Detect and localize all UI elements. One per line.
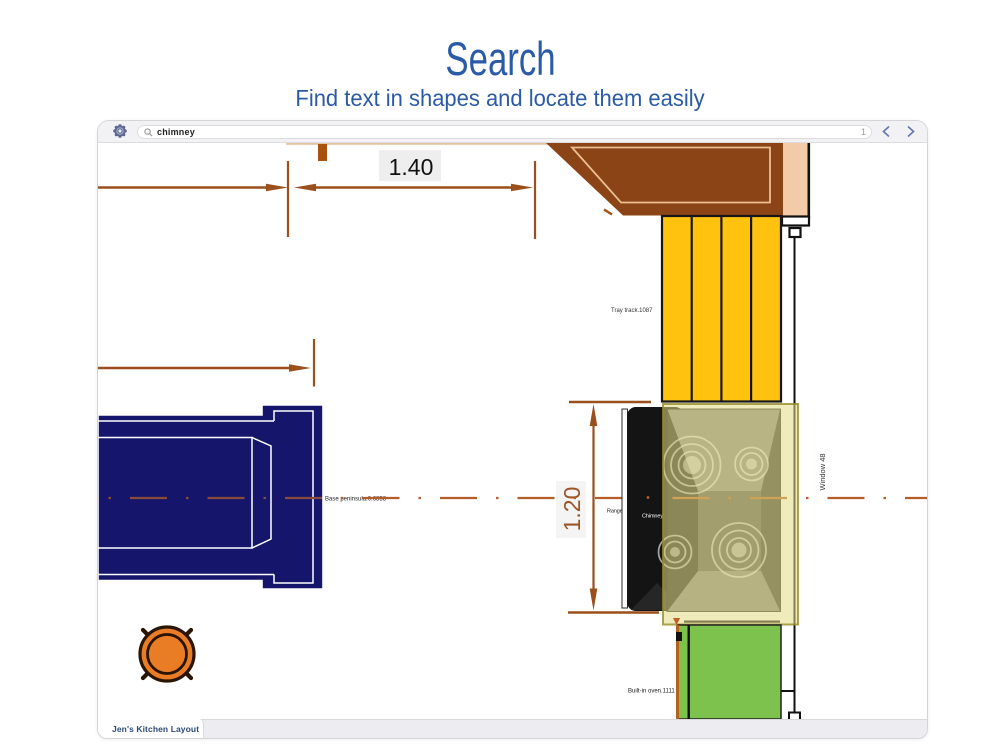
svg-text:Range: Range	[607, 509, 623, 515]
svg-text:1.20: 1.20	[559, 487, 585, 532]
svg-text:1.40: 1.40	[389, 154, 434, 180]
svg-text:Tray track.1087: Tray track.1087	[611, 308, 653, 314]
svg-text:Chimney: Chimney	[642, 514, 663, 520]
svg-text:Window 48: Window 48	[818, 453, 827, 490]
svg-text:Built-in oven.1111: Built-in oven.1111	[628, 689, 675, 695]
